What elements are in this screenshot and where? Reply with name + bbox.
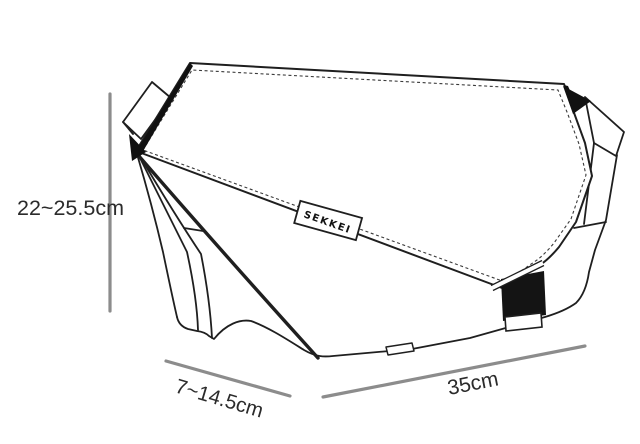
bag-line-art: SEKKEI 22~25.5cm 7~14.5cm 35cm: [0, 0, 640, 444]
bottom-tab: [386, 343, 414, 355]
bag-dimension-diagram: SEKKEI 22~25.5cm 7~14.5cm 35cm: [0, 0, 640, 444]
right-strap: [585, 97, 624, 156]
buckle-strap-tab: [505, 313, 542, 331]
depth-dimension-label: 7~14.5cm: [173, 375, 266, 423]
gusset-seam-1: [139, 156, 198, 330]
right-seam-tick: [574, 222, 606, 228]
height-dimension-label: 22~25.5cm: [17, 196, 124, 220]
flap-panel: [136, 63, 592, 288]
